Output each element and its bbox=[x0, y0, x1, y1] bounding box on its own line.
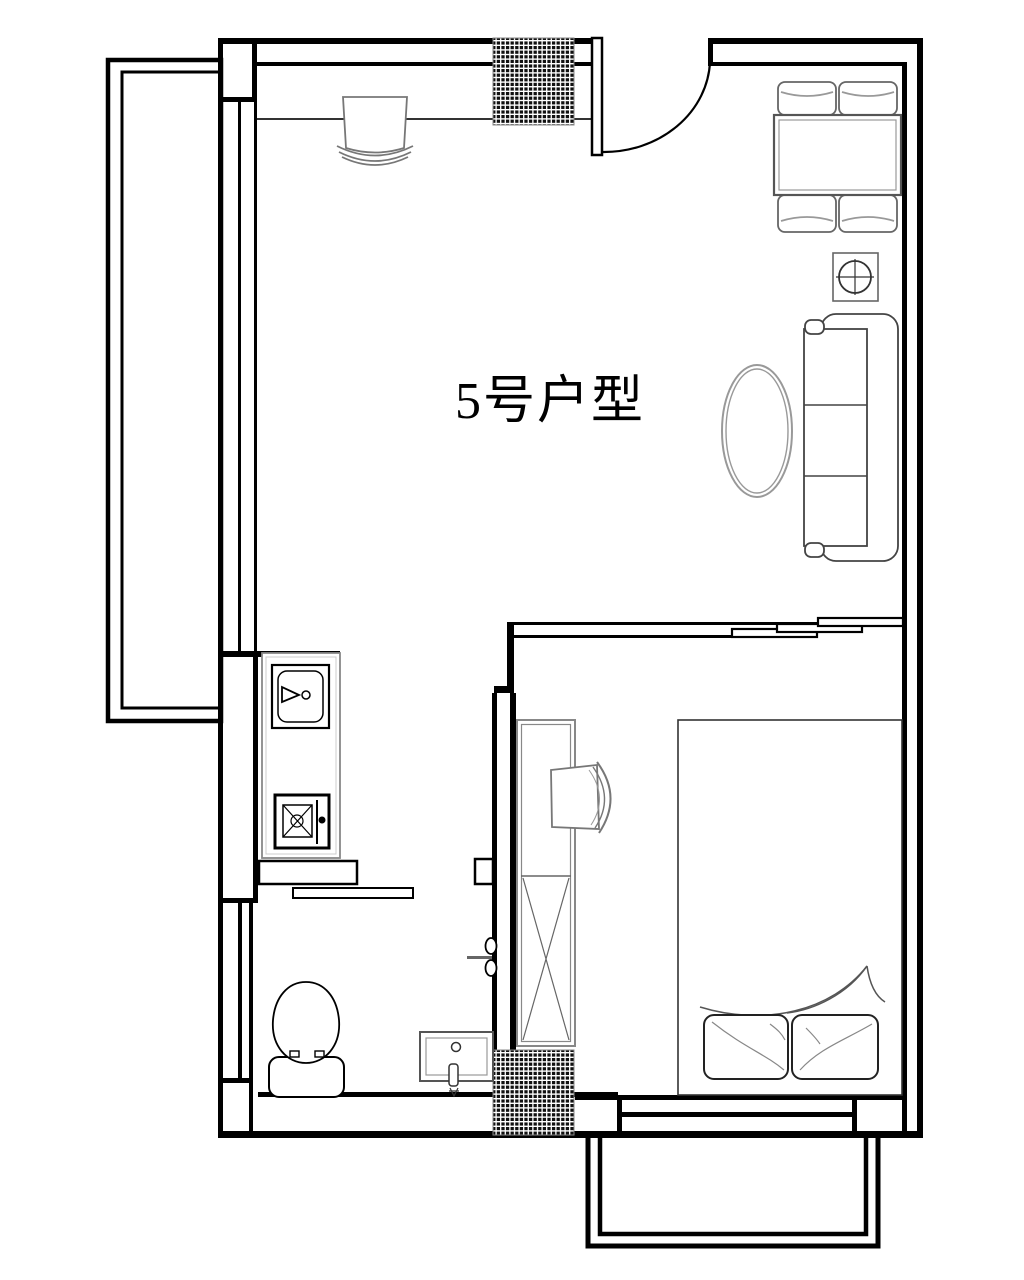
washbasin bbox=[420, 1032, 493, 1096]
entry-door-arc bbox=[603, 62, 710, 152]
chair-seat bbox=[343, 97, 407, 153]
sofa-arm-bottom bbox=[805, 543, 824, 557]
pivot-hinge-bottom bbox=[486, 960, 497, 976]
corner-block-bottom bbox=[218, 97, 257, 102]
bedroom-window-left-edge bbox=[617, 1097, 622, 1131]
double-bed bbox=[678, 720, 902, 1095]
bedroom-chair bbox=[551, 762, 611, 833]
kitchen-cavity-inner bbox=[253, 657, 258, 898]
sink-faucet-dot bbox=[302, 691, 310, 699]
left-window-line-a bbox=[238, 102, 241, 655]
entry-door-leaf bbox=[592, 38, 602, 155]
bedroom bbox=[517, 720, 902, 1095]
bath-sliding-panel bbox=[293, 888, 413, 898]
coffee-table-outer bbox=[722, 365, 792, 497]
entry-door bbox=[592, 38, 710, 155]
coffee-table-inner bbox=[726, 369, 788, 493]
dining-chair-tl bbox=[778, 82, 836, 115]
bedroom-north-line-2 bbox=[513, 635, 732, 638]
door-jamb-right bbox=[708, 38, 713, 66]
bedroom-sliding-door bbox=[732, 618, 903, 637]
bath-window-mid bbox=[238, 903, 242, 1078]
basin-faucet bbox=[449, 1064, 458, 1086]
pillow-left bbox=[704, 1015, 788, 1079]
balcony-bottom-outer bbox=[588, 1135, 878, 1246]
bath-wall-block bbox=[259, 861, 357, 884]
kitchen-stove bbox=[275, 795, 329, 848]
toilet bbox=[269, 982, 344, 1097]
column-top bbox=[493, 38, 574, 125]
plan-title: 5号户型 bbox=[455, 373, 645, 430]
bedroom-window-mid bbox=[620, 1112, 855, 1117]
bathroom bbox=[269, 982, 493, 1097]
toilet-hinge-left bbox=[290, 1051, 299, 1057]
bathroom-entry bbox=[259, 859, 493, 898]
stove-knob bbox=[319, 817, 326, 824]
balcony-left-inner bbox=[122, 72, 221, 708]
dining-chair-bl bbox=[778, 195, 836, 232]
desk-chair-top bbox=[337, 97, 413, 165]
dining-table bbox=[774, 115, 901, 195]
wall-top-inner-right bbox=[708, 62, 907, 66]
bath-wall-stub bbox=[475, 859, 493, 884]
sofa-seat bbox=[804, 329, 867, 546]
corridor-wall-top bbox=[507, 622, 514, 693]
sofa-arm-top bbox=[805, 320, 824, 334]
closet-west-line bbox=[510, 693, 516, 1050]
bath-window-inner bbox=[249, 903, 253, 1078]
toilet-hinge-right bbox=[315, 1051, 324, 1057]
left-window-line-b bbox=[254, 102, 257, 655]
pivot-door-line bbox=[467, 956, 492, 959]
wall-right-outer bbox=[917, 38, 923, 1138]
floor-plan-canvas: 5号户型 bbox=[0, 0, 1024, 1280]
sofa bbox=[804, 314, 898, 561]
pivot-hinge-top bbox=[486, 938, 497, 954]
wall-cap-1078 bbox=[218, 1078, 253, 1083]
wall-cap-898 bbox=[218, 898, 258, 903]
dining-set bbox=[774, 82, 901, 232]
toilet-bowl bbox=[273, 982, 339, 1063]
floor-plan-drawing: 5号户型 bbox=[0, 0, 1024, 1280]
balcony-left-outer bbox=[108, 60, 221, 721]
side-stool bbox=[833, 253, 878, 301]
sliding-panel-3 bbox=[818, 618, 903, 626]
dining-chair-tr bbox=[839, 82, 897, 115]
balcony-bottom-inner bbox=[600, 1135, 866, 1234]
left-lower-inner bbox=[249, 1083, 253, 1131]
pillow-right bbox=[792, 1015, 878, 1079]
kitchen-sink bbox=[272, 665, 329, 728]
dining-chair-br bbox=[839, 195, 897, 232]
wall-top-outer-right bbox=[708, 38, 923, 44]
corner-block-edge bbox=[252, 44, 257, 102]
corridor-wall-cap bbox=[494, 686, 514, 693]
kitchen bbox=[262, 653, 340, 858]
oval-coffee-table bbox=[722, 365, 792, 497]
stove-divider bbox=[316, 800, 318, 844]
column-bottom bbox=[493, 1050, 574, 1135]
basin-drain bbox=[452, 1043, 461, 1052]
bedroom-window-right-edge bbox=[852, 1097, 857, 1131]
